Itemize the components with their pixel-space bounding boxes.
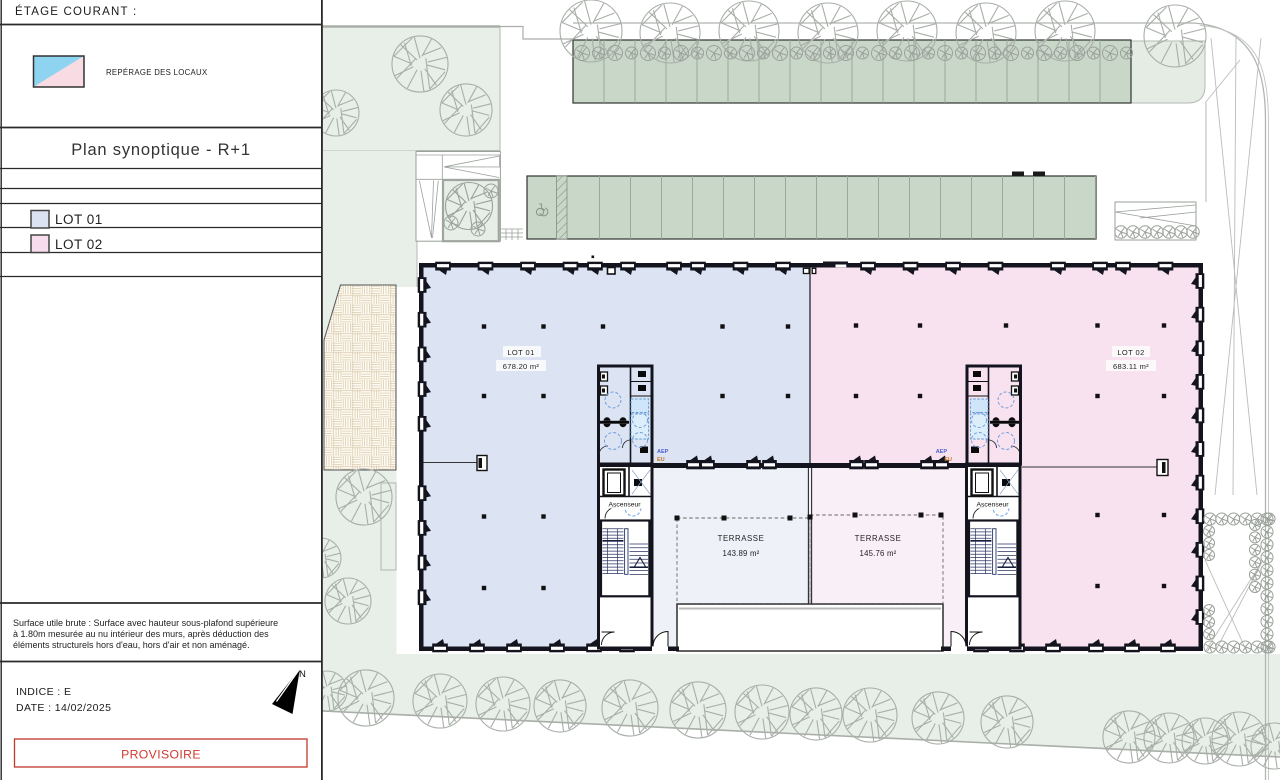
svg-text:N: N [299,669,306,680]
svg-text:LOT 02: LOT 02 [55,237,103,252]
svg-text:REPÉRAGE DES LOCAUX: REPÉRAGE DES LOCAUX [106,68,208,77]
svg-text:DATE : 14/02/2025: DATE : 14/02/2025 [16,702,111,714]
svg-text:145.76 m²: 145.76 m² [860,549,897,558]
svg-text:AEP: AEP [657,449,669,455]
svg-text:EU: EU [944,457,952,463]
svg-text:683.11 m²: 683.11 m² [1113,362,1149,371]
svg-text:LOT 01: LOT 01 [507,348,534,357]
svg-text:à 1.80m mesurée au nu intérieu: à 1.80m mesurée au nu intérieur des murs… [13,629,269,639]
svg-text:LOT 02: LOT 02 [1117,348,1144,357]
svg-text:143.89 m²: 143.89 m² [723,549,760,558]
svg-text:AEP: AEP [936,449,948,455]
svg-text:LOT 01: LOT 01 [55,212,103,227]
svg-text:INDICE : E: INDICE : E [16,686,71,698]
svg-text:TERRASSE: TERRASSE [718,534,765,543]
svg-text:éléments structurels hors d'ea: éléments structurels hors d'eau, hors d'… [13,640,250,650]
svg-text:PROVISOIRE: PROVISOIRE [121,748,201,762]
svg-text:TERRASSE: TERRASSE [855,534,902,543]
svg-text:Ascenseur: Ascenseur [976,502,1009,509]
svg-text:Ascenseur: Ascenseur [608,502,641,509]
svg-text:Plan synoptique - R+1: Plan synoptique - R+1 [71,141,251,159]
svg-text:ÉTAGE COURANT :: ÉTAGE COURANT : [15,5,137,18]
svg-text:EU: EU [657,457,665,463]
svg-text:Surface utile brute : Surface: Surface utile brute : Surface avec haute… [13,618,278,628]
svg-text:678.20 m²: 678.20 m² [503,362,540,371]
